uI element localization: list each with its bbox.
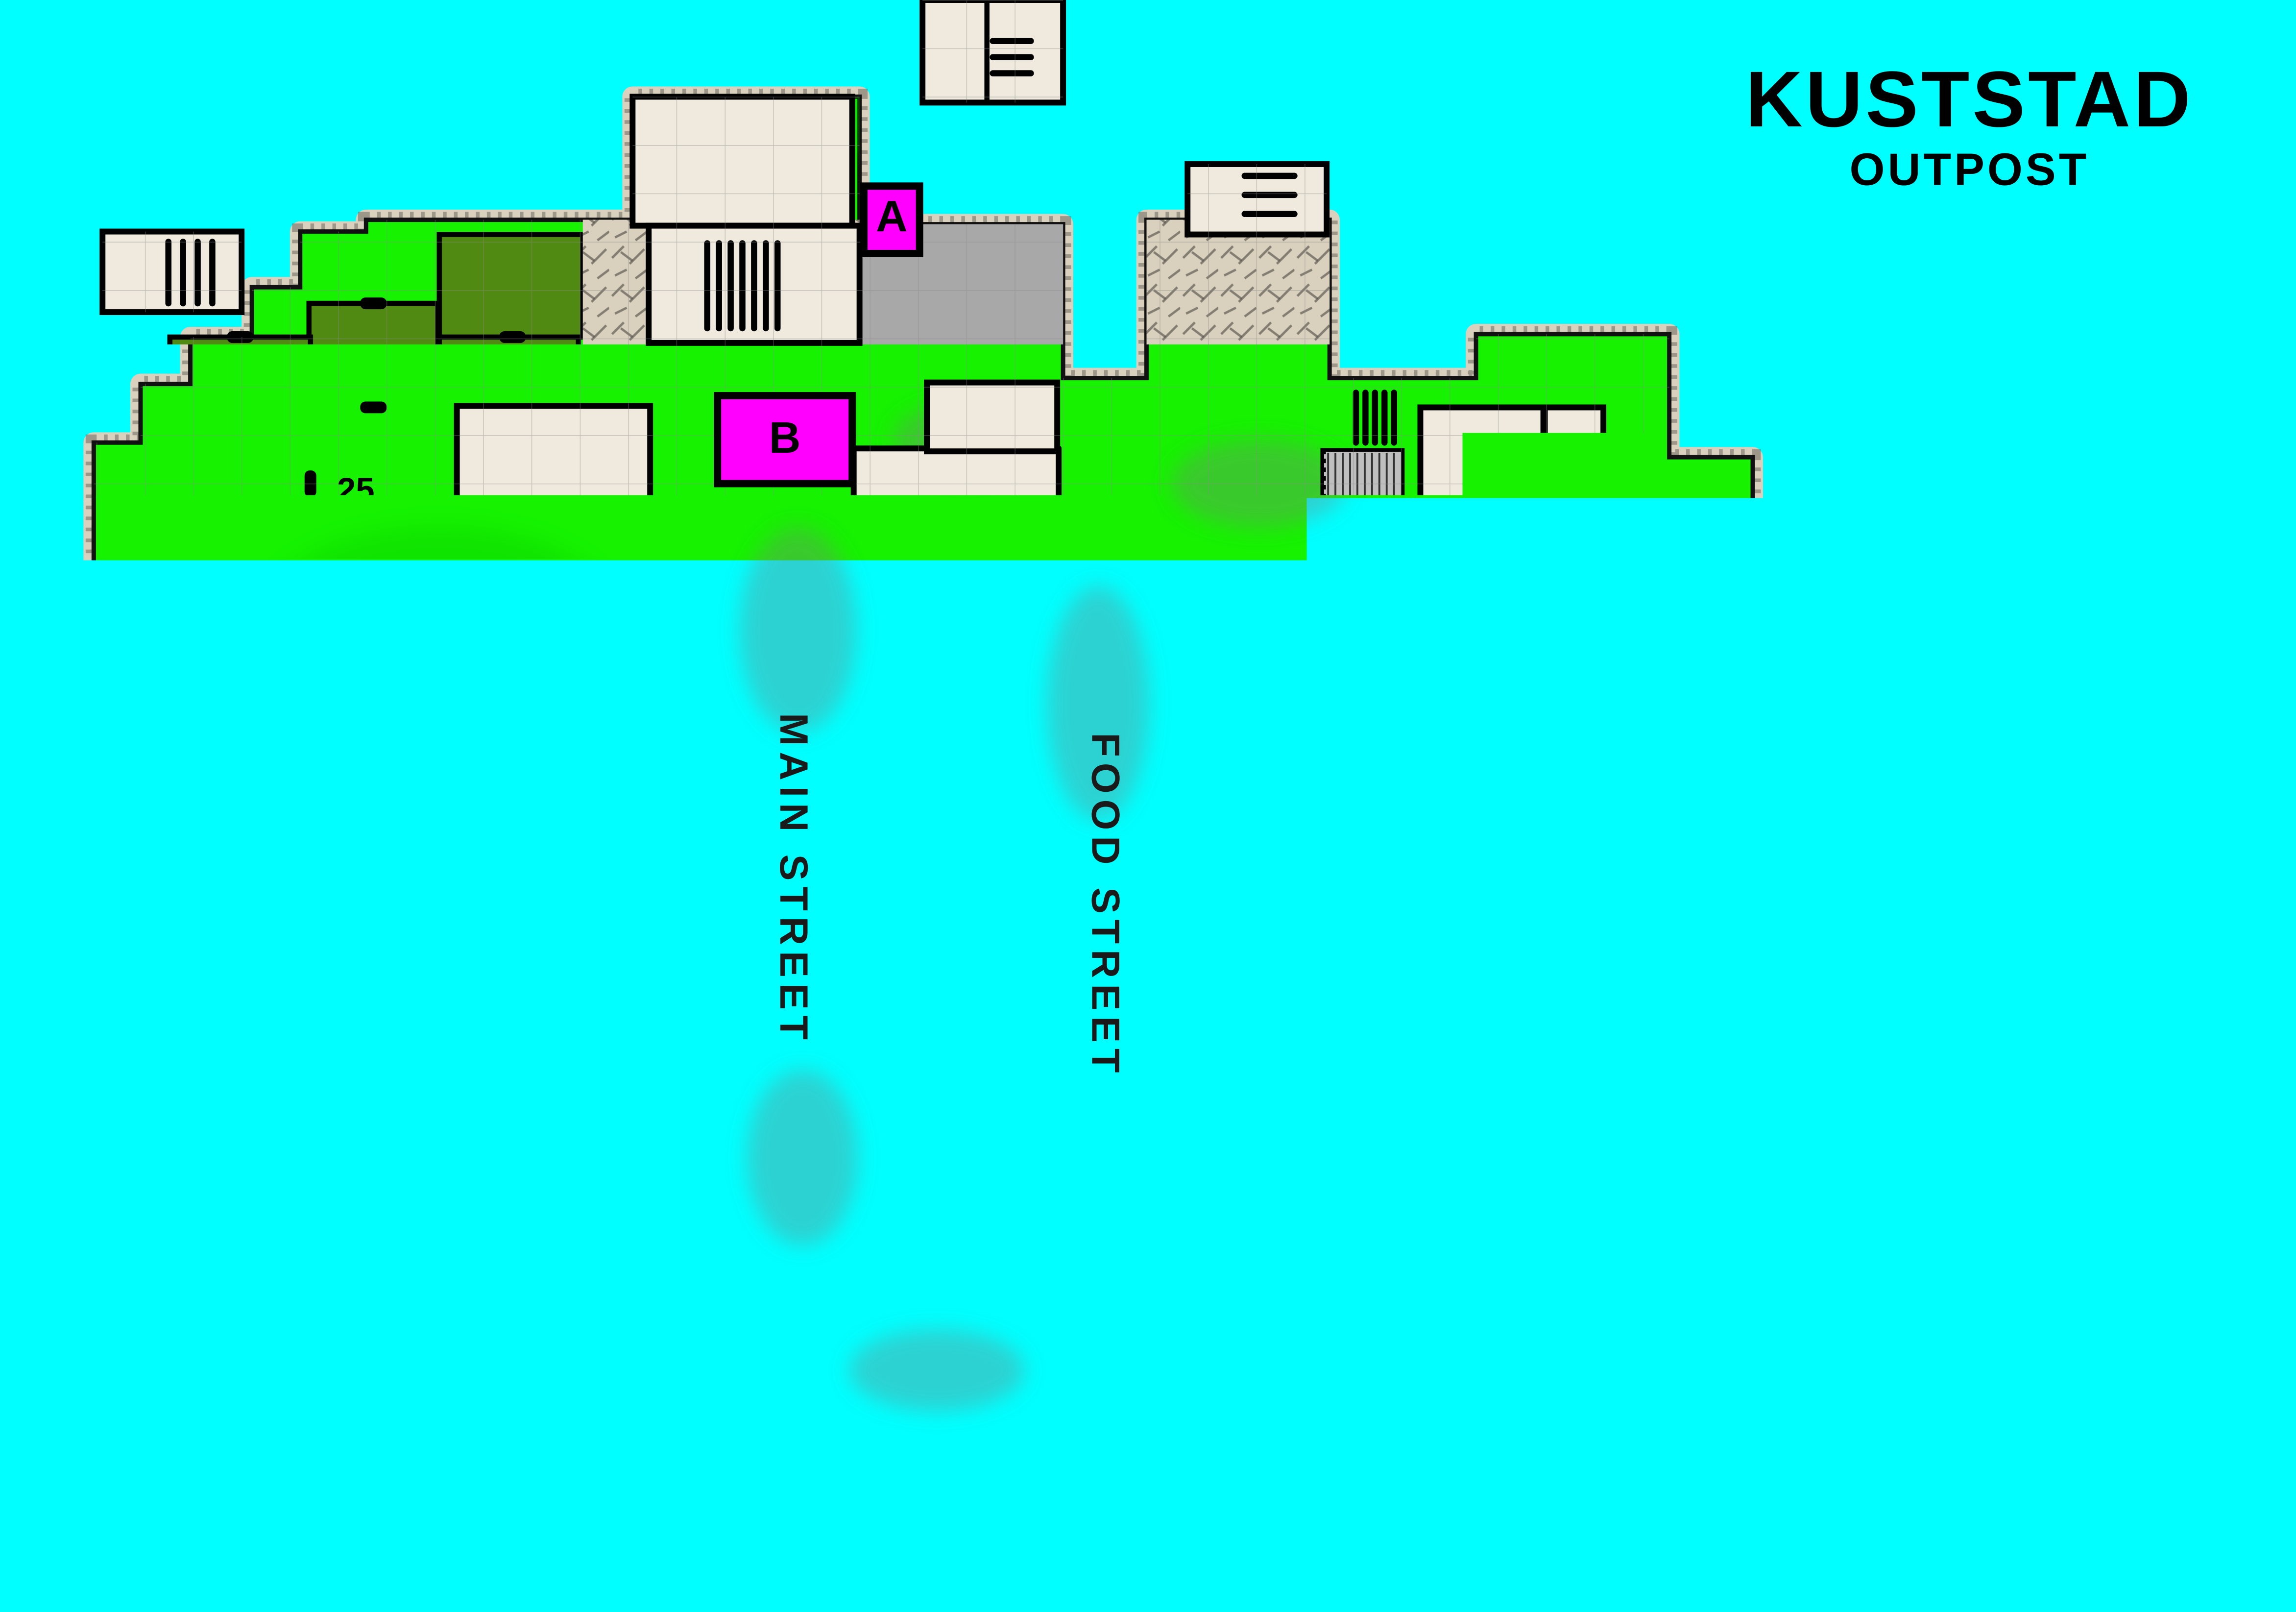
- gate-marker-label-e: E: [1081, 1479, 1110, 1528]
- food-street-label: FOOD STREET: [1084, 733, 1128, 1078]
- gate-marker-label-d: D: [428, 1140, 459, 1189]
- area-label-21: 21: [1375, 802, 1412, 840]
- building-label-6: 6: [767, 1408, 785, 1444]
- map-title: KUSTSTAD: [1745, 55, 2194, 144]
- building-label-11: 11: [1018, 955, 1053, 991]
- building-label-20: 20: [1389, 612, 1425, 648]
- building-label-9: 9: [903, 513, 921, 549]
- area-label-25: 25: [337, 471, 374, 509]
- area-label-23: 23: [1047, 1526, 1085, 1564]
- building-label-22: 22: [1307, 1288, 1343, 1324]
- town-map: ABCDE12345678910111213141516171819202221…: [0, 0, 2296, 1612]
- main-street-label: MAIN STREET: [772, 713, 816, 1046]
- gate-marker-label-c: C: [1530, 594, 1562, 643]
- building-label-4: 4: [536, 984, 554, 1021]
- building-label-3: 3: [671, 945, 689, 981]
- gate-marker-label-b: B: [769, 414, 801, 463]
- building-label-13: 13: [1065, 1210, 1101, 1246]
- building-label-2: 2: [678, 820, 696, 856]
- map-canvas: ABCDE12345678910111213141516171819202221…: [0, 0, 2296, 1612]
- building-label-1: 1: [571, 529, 589, 565]
- building-label-16: 16: [1155, 998, 1191, 1034]
- building-label-8: 8: [880, 800, 898, 836]
- building-label-7: 7: [884, 924, 902, 960]
- area-label-24: 24: [176, 1217, 213, 1254]
- building-label-10: 10: [1006, 743, 1041, 779]
- building-label-18: 18: [1177, 568, 1213, 605]
- area-label-26: 26: [1694, 829, 1732, 866]
- gate-marker-label-a: A: [876, 192, 908, 241]
- building-label-17: 17: [1162, 700, 1198, 736]
- building-label-19: 19: [1461, 482, 1497, 518]
- building-label-5: 5: [585, 1222, 604, 1258]
- map-subtitle: OUTPOST: [1850, 144, 2090, 195]
- building-label-14: 14: [992, 1418, 1029, 1454]
- building-label-15: 15: [1219, 1363, 1255, 1399]
- building-label-12: 12: [992, 1097, 1028, 1133]
